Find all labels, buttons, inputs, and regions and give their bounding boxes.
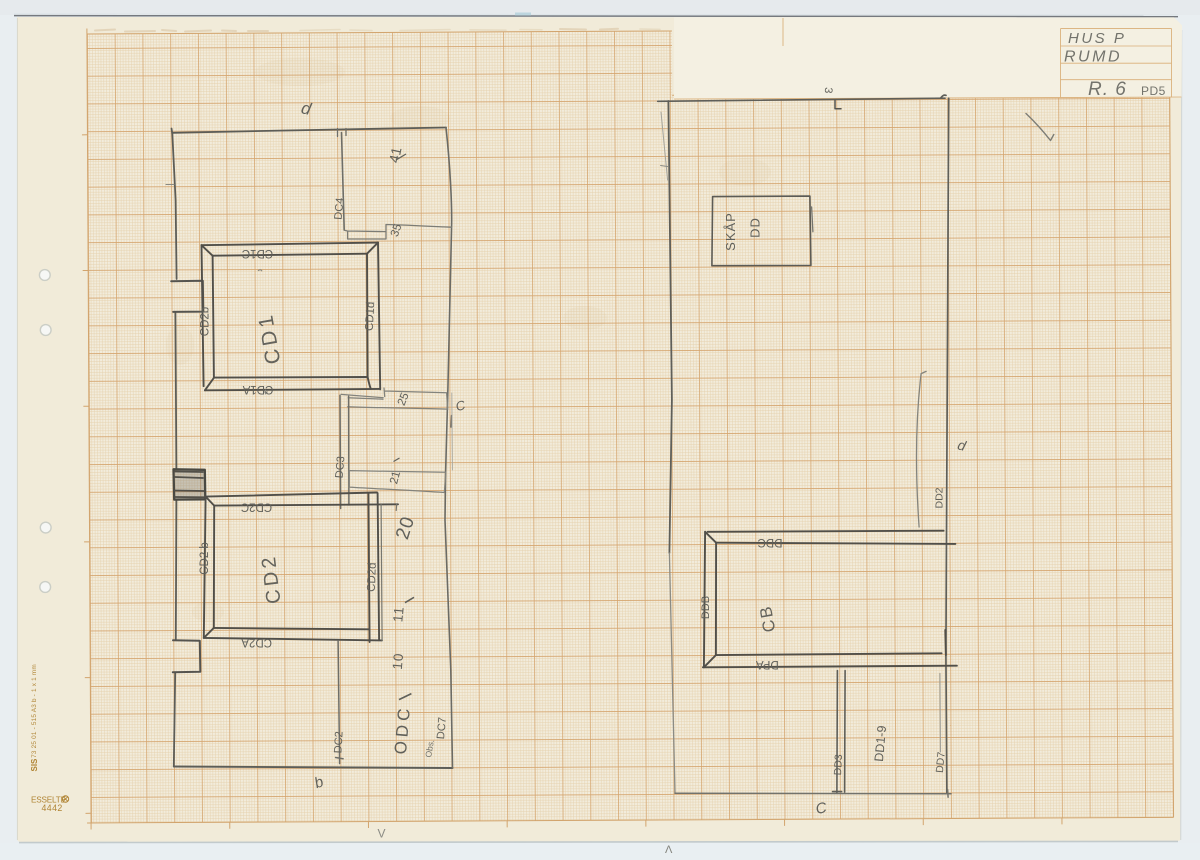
svg-text:73 25 01 - 515 A3 b - 1 x 1 mm: 73 25 01 - 515 A3 b - 1 x 1 mm	[31, 664, 38, 758]
svg-text:CD2d: CD2d	[366, 562, 379, 592]
svg-text:DPA: DPA	[756, 658, 779, 670]
svg-text:CD1d: CD1d	[364, 301, 378, 331]
svg-text:CD2A: CD2A	[241, 636, 272, 648]
svg-text:HUS P: HUS P	[1068, 30, 1126, 47]
svg-text:SKÅP: SKÅP	[723, 212, 738, 251]
svg-text:DC7: DC7	[435, 717, 449, 740]
svg-text:DC2: DC2	[332, 731, 345, 754]
svg-text:4442: 4442	[42, 803, 63, 813]
svg-text:10: 10	[390, 652, 406, 670]
svg-text:SIS: SIS	[30, 758, 39, 772]
svg-text:DD7: DD7	[934, 751, 948, 773]
svg-text:DD: DD	[748, 217, 763, 238]
svg-text:CD2C: CD2C	[241, 501, 272, 513]
svg-text:DD3: DD3	[832, 754, 845, 776]
svg-text:DDC: DDC	[758, 536, 783, 548]
svg-text:11: 11	[390, 605, 406, 622]
svg-text:CD1C: CD1C	[242, 247, 273, 259]
svg-text:3: 3	[822, 87, 834, 94]
svg-text:DDB: DDB	[700, 596, 712, 619]
svg-text:PD5: PD5	[1141, 84, 1166, 98]
svg-text:RUMD: RUMD	[1064, 49, 1122, 66]
svg-text:CD2b: CD2b	[200, 307, 212, 336]
svg-text:DC4: DC4	[333, 197, 347, 220]
svg-text:DD2: DD2	[934, 487, 946, 508]
svg-text:DC3: DC3	[334, 456, 348, 479]
svg-text:V: V	[378, 827, 386, 841]
svg-text:R. 6: R. 6	[1088, 79, 1127, 100]
svg-text:CD1A: CD1A	[242, 383, 273, 395]
svg-text:Λ: Λ	[665, 844, 673, 856]
svg-text:CD2 b: CD2 b	[199, 542, 211, 575]
